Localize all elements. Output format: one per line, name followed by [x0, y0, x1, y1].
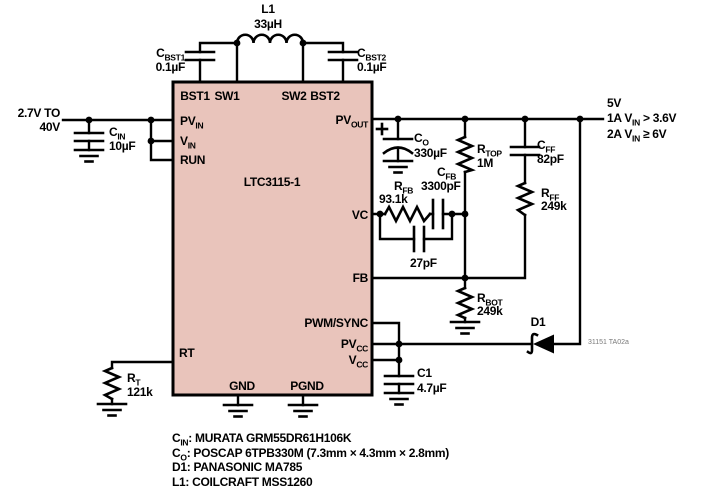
pin-label-rt: RT — [179, 346, 195, 360]
ground-c1-icon — [385, 393, 413, 405]
note-d1: D1: PANASONIC MA785 — [172, 460, 303, 474]
pin-label-fb: FB — [353, 271, 369, 285]
input-voltage-line2: 40V — [40, 120, 61, 134]
wire-bst-sw-net — [200, 43, 343, 82]
label-c1-value: 4.7µF — [417, 381, 446, 395]
label-rbot-value: 249k — [477, 304, 503, 318]
resistor-rbot-symbol — [458, 288, 472, 318]
resistor-rtop-symbol — [458, 137, 472, 172]
label-rff-value: 249k — [541, 199, 567, 213]
wire-vc-net — [372, 214, 465, 239]
label-cbst2-value: 0.1µF — [357, 60, 386, 74]
label-cin-value: 10µF — [109, 139, 135, 153]
ic-part-number: LTC3115-1 — [244, 175, 301, 189]
pin-label-gnd: GND — [229, 379, 255, 393]
pin-label-bst2: BST2 — [310, 89, 340, 103]
label-c1-ref: C1 — [417, 366, 432, 380]
label-rtop-value: 1M — [477, 156, 493, 170]
capacitor-co-symbol — [377, 124, 412, 153]
ground-rbot-icon — [451, 322, 479, 334]
schematic-canvas: L1 33µH CBST1 0.1µF CBST2 0.1µF LTC3115-… — [0, 0, 704, 500]
label-cfb-value: 3300pF — [421, 179, 461, 193]
ground-pgnd-icon — [289, 405, 317, 417]
label-cbst1-value: 0.1µF — [156, 60, 185, 74]
output-spec-2: 2A VIN ≥ 6V — [607, 127, 667, 144]
resistor-rff-symbol — [518, 183, 532, 215]
diode-d1-symbol — [528, 334, 554, 354]
label-d1-ref: D1 — [531, 315, 546, 329]
ground-gnd-icon — [224, 405, 252, 417]
pin-label-run: RUN — [180, 153, 205, 167]
label-rfb-value: 93.1k — [379, 192, 408, 206]
pin-label-sw1: SW1 — [214, 89, 240, 103]
resistor-rfb-symbol — [385, 207, 430, 221]
pin-label-sw2: SW2 — [281, 89, 307, 103]
ground-rt-icon — [98, 404, 126, 416]
label-l1-ref: L1 — [261, 2, 275, 16]
resistor-rt-symbol — [105, 368, 119, 399]
capacitor-cbst2-symbol — [329, 52, 357, 60]
input-voltage-line1: 2.7V TO — [18, 106, 60, 120]
figure-number: 31151 TA02a — [588, 339, 629, 346]
capacitor-cin-symbol — [75, 133, 103, 141]
pin-label-pwmsync: PWM/SYNC — [304, 316, 368, 330]
capacitor-c1-symbol — [385, 376, 413, 384]
pin-label-pgnd: PGND — [290, 379, 324, 393]
pin-label-vc: VC — [352, 208, 369, 222]
label-cff-value: 82pF — [537, 152, 564, 166]
capacitor-27pf-symbol — [414, 227, 424, 251]
inductor-l1-symbol — [237, 35, 303, 43]
output-voltage: 5V — [607, 96, 621, 110]
note-l1: L1: COILCRAFT MSS1260 — [172, 475, 313, 489]
label-co-value: 330µF — [414, 146, 447, 160]
label-rt-value: 121k — [127, 385, 153, 399]
capacitor-cbst1-symbol — [186, 52, 214, 60]
label-l1-value: 33µH — [254, 17, 282, 31]
wire-pvcc-net — [372, 323, 531, 393]
pin-label-bst1: BST1 — [180, 89, 210, 103]
label-27pf-value: 27pF — [410, 256, 437, 270]
capacitor-cff-symbol — [511, 147, 539, 155]
ground-co-icon — [384, 161, 412, 173]
ground-cin-icon — [75, 150, 103, 162]
schematic-page: L1 33µH CBST1 0.1µF CBST2 0.1µF LTC3115-… — [0, 0, 704, 500]
output-spec-1: 1A VIN > 3.6V — [607, 111, 677, 128]
capacitor-cfb-symbol — [433, 200, 443, 228]
